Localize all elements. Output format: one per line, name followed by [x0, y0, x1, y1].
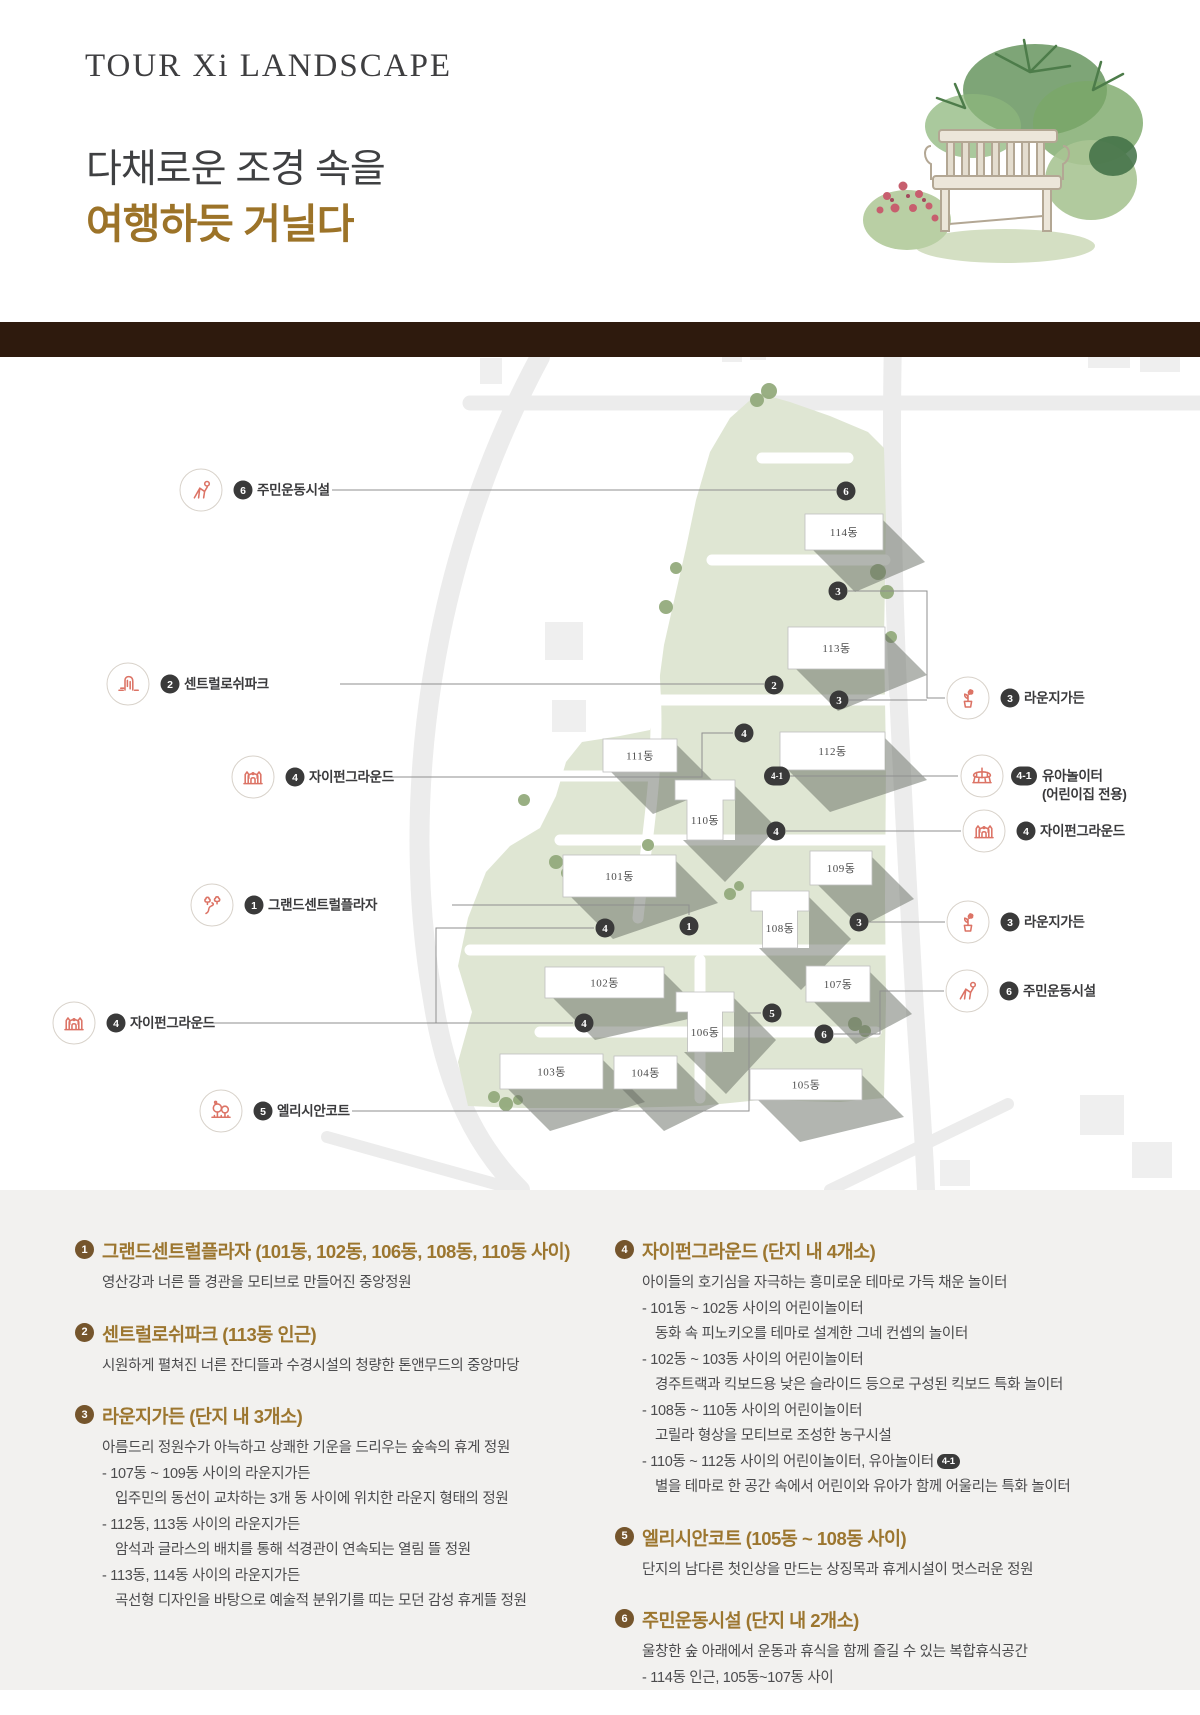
- building-label: 102동: [590, 978, 619, 990]
- callout-label: 자이펀그라운드: [130, 1015, 216, 1031]
- callout-label: 센트럴로쉬파크: [184, 677, 269, 692]
- building-label: 114동: [830, 527, 858, 539]
- bench-garden-illustration: [845, 28, 1155, 288]
- dot-number: 3: [835, 586, 841, 598]
- legend-item-title: 그랜드센트럴플라자 (101동, 102동, 106동, 108동, 110동 …: [102, 1238, 570, 1264]
- callout-icon-circle: [946, 970, 988, 1012]
- map-dot-4-1: 4-1: [764, 767, 790, 786]
- legend-item-title-row: 1그랜드센트럴플라자 (101동, 102동, 106동, 108동, 110동…: [75, 1238, 575, 1264]
- legend-item-lines: 영산강과 너른 뜰 경관을 모티브로 만들어진 중앙정원: [75, 1271, 575, 1297]
- tree: [880, 585, 894, 599]
- legend-number-badge: 5: [615, 1527, 634, 1546]
- footprint: [722, 357, 742, 362]
- callout-label: 주민운동시설: [257, 482, 330, 498]
- legend-column-right: 4자이펀그라운드 (단지 내 4개소)아이들의 호기심을 자극하는 흥미로운 테…: [615, 1238, 1160, 1715]
- map-dot-3: 3: [830, 691, 849, 710]
- legend-line: - 101동 ~ 102동 사이의 어린이놀이터: [642, 1297, 1160, 1323]
- legend-item-title: 주민운동시설 (단지 내 2개소): [642, 1607, 859, 1633]
- map-dot-3: 3: [850, 913, 869, 932]
- legend-item-4: 4자이펀그라운드 (단지 내 4개소)아이들의 호기심을 자극하는 흥미로운 테…: [615, 1238, 1160, 1501]
- dot-number: 4-1: [771, 771, 783, 781]
- callout-자이펀그라운드: 4자이펀그라운드: [53, 1002, 216, 1044]
- divider-band: [0, 322, 1200, 357]
- legend-item-title-row: 6주민운동시설 (단지 내 2개소): [615, 1607, 1160, 1633]
- callout-label: 라운지가든: [1024, 691, 1085, 706]
- dot-number: 2: [771, 680, 777, 692]
- legend-line: 아름드리 정원수가 아늑하고 상쾌한 기운을 드리우는 숲속의 휴게 정원: [102, 1436, 575, 1462]
- building-label: 104동: [631, 1068, 660, 1080]
- dot-number: 1: [686, 921, 692, 933]
- dot-number: 4: [581, 1018, 587, 1030]
- tree: [670, 562, 682, 574]
- headline-line-1: 다채로운 조경 속을: [86, 138, 385, 194]
- legend-item-title: 센트럴로쉬파크 (113동 인근): [102, 1321, 316, 1347]
- legend-line: 단지의 남다른 첫인상을 만드는 상징목과 휴게시설이 멋스러운 정원: [642, 1558, 1160, 1584]
- map-dot-4: 4: [575, 1014, 594, 1033]
- building-label: 101동: [605, 871, 634, 883]
- legend-column-left: 1그랜드센트럴플라자 (101동, 102동, 106동, 108동, 110동…: [75, 1238, 575, 1639]
- map-dot-1: 1: [680, 917, 699, 936]
- callout-badge-number: 5: [260, 1106, 266, 1118]
- legend-item-2: 2센트럴로쉬파크 (113동 인근)시원하게 펼쳐진 너른 잔디뜰과 수경시설의…: [75, 1321, 575, 1380]
- legend-item-lines: 단지의 남다른 첫인상을 만드는 상징목과 휴게시설이 멋스러운 정원: [615, 1558, 1160, 1584]
- legend-line: 경주트랙과 킥보드용 낮은 슬라이드 등으로 구성된 킥보드 특화 놀이터: [642, 1373, 1160, 1399]
- legend-line: 입주민의 동선이 교차하는 3개 동 사이에 위치한 라운지 형태의 정원: [102, 1487, 575, 1513]
- legend-item-title: 엘리시안코트 (105동 ~ 108동 사이): [642, 1525, 906, 1551]
- site-plan-map: 114동113동112동111동110동109동101동108동102동107동…: [0, 357, 1200, 1190]
- legend-line: - 110동 ~ 112동 사이의 어린이놀이터, 유아놀이터4-1: [642, 1450, 1160, 1476]
- footprint: [480, 358, 502, 384]
- footprint: [1132, 1142, 1172, 1178]
- building-label: 110동: [691, 815, 719, 827]
- brand-title: TOUR Xi LANDSCAPE: [85, 48, 452, 85]
- footprint: [750, 357, 766, 360]
- tree: [734, 881, 744, 891]
- callout-label: 유아놀이터: [1042, 768, 1103, 784]
- legend-section: 1그랜드센트럴플라자 (101동, 102동, 106동, 108동, 110동…: [0, 1190, 1200, 1690]
- footprint: [1140, 357, 1180, 372]
- tree: [518, 794, 530, 806]
- legend-number-badge: 6: [615, 1609, 634, 1628]
- legend-number-badge: 4: [615, 1240, 634, 1259]
- legend-line: 시원하게 펼쳐진 너른 잔디뜰과 수경시설의 청량한 톤앤무드의 중앙마당: [102, 1354, 575, 1380]
- headline-line-2: 여행하듯 거닐다: [86, 190, 353, 250]
- building-label: 103동: [537, 1067, 566, 1079]
- legend-line: 별을 테마로 한 공간 속에서 어린이와 유아가 함께 어울리는 특화 놀이터: [642, 1475, 1160, 1501]
- legend-number-badge: 2: [75, 1323, 94, 1342]
- map-dot-4: 4: [767, 822, 786, 841]
- building-label: 107동: [824, 979, 853, 991]
- building-label: 105동: [792, 1080, 821, 1092]
- legend-item-title-row: 5엘리시안코트 (105동 ~ 108동 사이): [615, 1525, 1160, 1551]
- legend-item-title-row: 3라운지가든 (단지 내 3개소): [75, 1403, 575, 1429]
- callout-엘리시안코트: 5엘리시안코트: [200, 1090, 351, 1132]
- legend-item-lines: 울창한 숲 아래에서 운동과 휴식을 함께 즐길 수 있는 복합휴식공간- 11…: [615, 1640, 1160, 1691]
- tree: [659, 600, 673, 614]
- callout-icon-circle: [180, 469, 222, 511]
- callout-badge-number: 2: [167, 679, 173, 691]
- legend-item-6: 6주민운동시설 (단지 내 2개소)울창한 숲 아래에서 운동과 휴식을 함께 …: [615, 1607, 1160, 1691]
- callout-badge-number: 1: [251, 900, 257, 912]
- building-label: 111동: [626, 751, 654, 763]
- callout-그랜드센트럴플라자: 1그랜드센트럴플라자: [191, 884, 378, 926]
- tree: [750, 393, 764, 407]
- tree: [642, 839, 654, 851]
- footprint: [1088, 357, 1130, 368]
- inline-badge-4-1: 4-1: [937, 1454, 960, 1469]
- building-label: 112동: [818, 746, 846, 758]
- legend-item-title: 라운지가든 (단지 내 3개소): [102, 1403, 302, 1429]
- footprint: [545, 622, 583, 660]
- legend-item-lines: 아름드리 정원수가 아늑하고 상쾌한 기운을 드리우는 숲속의 휴게 정원- 1…: [75, 1436, 575, 1615]
- map-dot-4: 4: [596, 919, 615, 938]
- callout-유아놀이터: 4-1유아놀이터(어린이집 전용): [961, 755, 1127, 802]
- legend-item-5: 5엘리시안코트 (105동 ~ 108동 사이)단지의 남다른 첫인상을 만드는…: [615, 1525, 1160, 1584]
- callout-badge-number: 4-1: [1016, 770, 1031, 782]
- flower-bush: [863, 182, 951, 251]
- building-label: 109동: [827, 863, 856, 875]
- legend-item-1: 1그랜드센트럴플라자 (101동, 102동, 106동, 108동, 110동…: [75, 1238, 575, 1297]
- callout-label: 자이펀그라운드: [309, 769, 395, 785]
- building-label: 108동: [766, 923, 795, 935]
- dot-number: 4: [741, 728, 747, 740]
- legend-line: - 112동, 113동 사이의 라운지가든: [102, 1513, 575, 1539]
- dot-number: 3: [836, 695, 842, 707]
- map-dot-6: 6: [815, 1025, 834, 1044]
- callout-badge-number: 4: [113, 1018, 119, 1030]
- legend-line: - 107동 ~ 109동 사이의 라운지가든: [102, 1462, 575, 1488]
- callout-badge-number: 6: [1006, 986, 1012, 998]
- legend-line: 영산강과 너른 뜰 경관을 모티브로 만들어진 중앙정원: [102, 1271, 575, 1297]
- tree: [761, 383, 777, 399]
- legend-item-3: 3라운지가든 (단지 내 3개소)아름드리 정원수가 아늑하고 상쾌한 기운을 …: [75, 1403, 575, 1615]
- legend-line: 암석과 글라스의 배치를 통해 석경관이 연속되는 열림 뜰 정원: [102, 1538, 575, 1564]
- callout-badge-number: 3: [1007, 693, 1013, 705]
- callout-label: 그랜드센트럴플라자: [268, 897, 378, 913]
- legend-item-title: 자이펀그라운드 (단지 내 4개소): [642, 1238, 875, 1264]
- legend-line: 곡선형 디자인을 바탕으로 예술적 분위기를 띠는 모던 감성 휴게뜰 정원: [102, 1589, 575, 1615]
- legend-line: 아이들의 호기심을 자극하는 흥미로운 테마로 가득 채운 놀이터: [642, 1271, 1160, 1297]
- callout-라운지가든: 3라운지가든: [947, 901, 1085, 943]
- legend-line: 동화 속 피노키오를 테마로 설계한 그네 컨셉의 놀이터: [642, 1322, 1160, 1348]
- callout-label: 자이펀그라운드: [1040, 823, 1126, 839]
- callout-label: 주민운동시설: [1023, 983, 1096, 999]
- callout-sublabel: (어린이집 전용): [1042, 786, 1127, 802]
- callout-자이펀그라운드: 4자이펀그라운드: [963, 810, 1126, 852]
- callout-badge-number: 6: [240, 485, 246, 497]
- tree: [549, 855, 563, 869]
- footprint: [940, 1160, 970, 1186]
- tree: [499, 1097, 513, 1111]
- tree: [724, 888, 736, 900]
- dot-number: 4: [773, 826, 779, 838]
- map-dot-4: 4: [735, 724, 754, 743]
- legend-number-badge: 1: [75, 1240, 94, 1259]
- dot-number: 4: [602, 923, 608, 935]
- map-dot-2: 2: [765, 676, 784, 695]
- callout-label: 엘리시안코트: [277, 1103, 351, 1119]
- legend-number-badge: 3: [75, 1405, 94, 1424]
- callout-라운지가든: 3라운지가든: [947, 677, 1085, 719]
- callout-badge-number: 4: [1023, 826, 1029, 838]
- map-dot-6: 6: [837, 482, 856, 501]
- legend-item-title-row: 4자이펀그라운드 (단지 내 4개소): [615, 1238, 1160, 1264]
- callout-label: 라운지가든: [1024, 915, 1085, 930]
- callout-badge-number: 4: [292, 772, 298, 784]
- dot-number: 6: [821, 1029, 827, 1041]
- building-label: 113동: [822, 643, 850, 655]
- callout-주민운동시설: 6주민운동시설: [946, 970, 1096, 1012]
- callout-자이펀그라운드: 4자이펀그라운드: [232, 756, 395, 798]
- legend-line: 고릴라 형상을 모티브로 조성한 농구시설: [642, 1424, 1160, 1450]
- callout-주민운동시설: 6주민운동시설: [180, 469, 330, 511]
- legend-line: 울창한 숲 아래에서 운동과 휴식을 함께 즐길 수 있는 복합휴식공간: [642, 1640, 1160, 1666]
- footprint: [552, 700, 586, 732]
- map-dot-5: 5: [763, 1004, 782, 1023]
- map-dot-3: 3: [829, 582, 848, 601]
- callout-badge-number: 3: [1007, 917, 1013, 929]
- tree: [488, 1091, 500, 1103]
- legend-item-title-row: 2센트럴로쉬파크 (113동 인근): [75, 1321, 575, 1347]
- legend-item-lines: 시원하게 펼쳐진 너른 잔디뜰과 수경시설의 청량한 톤앤무드의 중앙마당: [75, 1354, 575, 1380]
- dot-number: 6: [843, 486, 849, 498]
- legend-line: - 113동, 114동 사이의 라운지가든: [102, 1564, 575, 1590]
- legend-line: - 108동 ~ 110동 사이의 어린이놀이터: [642, 1399, 1160, 1425]
- building-label: 106동: [691, 1027, 720, 1039]
- dot-number: 3: [856, 917, 862, 929]
- dot-number: 5: [769, 1008, 775, 1020]
- legend-line: - 114동 인근, 105동~107동 사이: [642, 1666, 1160, 1692]
- footprint: [1080, 1095, 1124, 1135]
- callout-센트럴로쉬파크: 2센트럴로쉬파크: [107, 663, 269, 705]
- legend-item-lines: 아이들의 호기심을 자극하는 흥미로운 테마로 가득 채운 놀이터- 101동 …: [615, 1271, 1160, 1501]
- legend-line: - 102동 ~ 103동 사이의 어린이놀이터: [642, 1348, 1160, 1374]
